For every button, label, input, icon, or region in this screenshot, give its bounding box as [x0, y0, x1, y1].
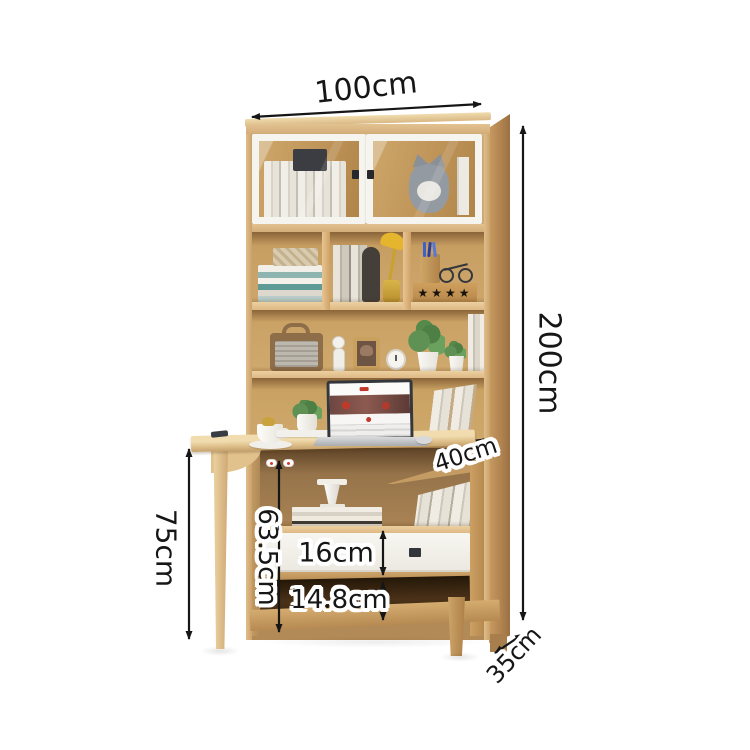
dim-label-drawer-height: 16cm — [298, 538, 374, 569]
dim-label-height: 200cm — [532, 312, 567, 415]
bookshelf-side-panel — [489, 114, 510, 643]
cabinet-right-edge — [484, 134, 490, 640]
decor-laptop-keyboard — [313, 437, 428, 446]
decor-photo-frame — [353, 337, 380, 370]
decor-laptop-screen — [326, 379, 413, 440]
decor-clock — [386, 349, 406, 370]
shelf-board — [246, 371, 490, 378]
cup-gold-decor — [262, 417, 275, 426]
shelf-board — [246, 526, 490, 533]
radio-handle — [282, 323, 310, 335]
pen-icon — [423, 242, 426, 257]
wood-band — [246, 224, 490, 232]
decor-trophy-stem — [324, 484, 340, 506]
decor-dark-box — [293, 149, 327, 171]
glass-door-right — [366, 134, 482, 224]
drawer-handle — [409, 548, 421, 557]
desk-lamp-arm — [388, 245, 397, 281]
decor-plant-leaves — [408, 320, 445, 355]
dim-label-desk-clearance: 63.5cm — [252, 508, 282, 606]
product-dimension-image: ★★★★ — [0, 0, 750, 750]
cat-face — [417, 181, 441, 201]
red-dot-marker — [283, 459, 294, 467]
decor-books-row — [264, 161, 346, 217]
decor-plant-pot — [448, 356, 465, 371]
pen-icon — [432, 242, 437, 257]
decor-bicycle-wheel — [458, 268, 473, 283]
decor-mouse — [416, 436, 432, 444]
door-handle-right — [367, 170, 374, 179]
decor-pattern-box — [273, 248, 318, 266]
shelf-divider — [403, 232, 411, 310]
decor-stacked-books — [258, 265, 322, 302]
decor-pencil-cup — [420, 254, 440, 283]
star-icons: ★★★★ — [417, 287, 472, 299]
shelf-row-2: ★★★★ — [246, 232, 490, 310]
desk-lamp-base — [383, 280, 400, 302]
decor-cat-figurine — [409, 163, 449, 213]
leg-shadow — [440, 652, 480, 662]
decor-book — [457, 157, 469, 215]
webpage-hero-image — [330, 394, 410, 414]
decor-radio — [270, 333, 323, 371]
shelf-row-3 — [246, 310, 490, 378]
glass-pane — [259, 141, 359, 217]
top-wood-band — [246, 124, 490, 134]
glass-pane — [373, 141, 475, 217]
red-dot-marker — [266, 459, 277, 467]
decor-plant-pot — [416, 352, 440, 371]
desk-leg — [213, 446, 228, 649]
shelf-divider — [322, 232, 330, 310]
dim-label-bottom-gap: 14.8cm — [290, 585, 388, 615]
decor-white-tray — [276, 430, 330, 437]
decor-books — [468, 314, 485, 371]
decor-star-box: ★★★★ — [413, 283, 477, 302]
decor-leaning-books — [429, 384, 477, 432]
door-handle-left — [352, 170, 359, 179]
glass-door-left — [252, 134, 366, 224]
dim-label-desk-height: 75cm — [150, 509, 183, 587]
decor-astronaut-body — [333, 348, 345, 372]
decor-figurine — [362, 247, 380, 302]
shelf-board — [246, 302, 490, 310]
webpage-content — [330, 423, 410, 437]
dim-label-width: 100cm — [313, 65, 419, 111]
